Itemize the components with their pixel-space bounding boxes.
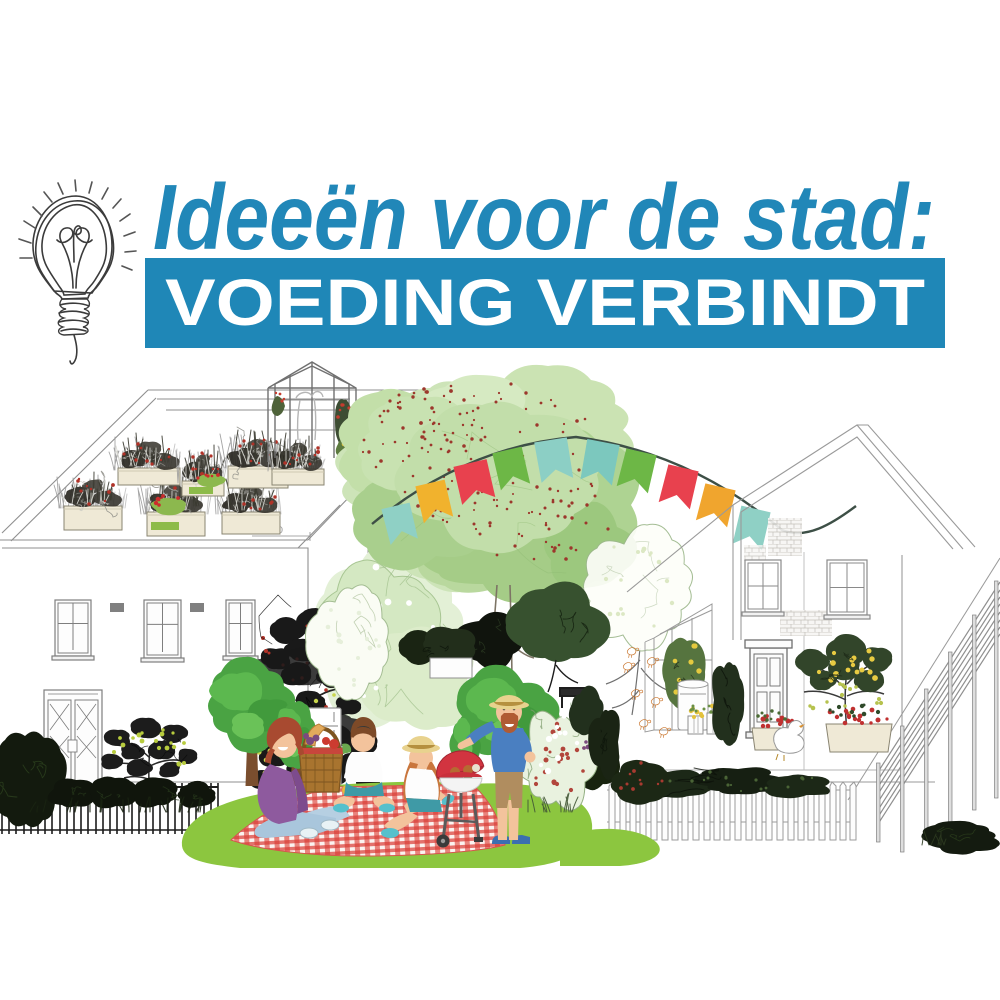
svg-text:Ideeën voor de stad:: Ideeën voor de stad: — [153, 165, 935, 269]
svg-text:VOEDING VERBINDT: VOEDING VERBINDT — [165, 265, 925, 339]
